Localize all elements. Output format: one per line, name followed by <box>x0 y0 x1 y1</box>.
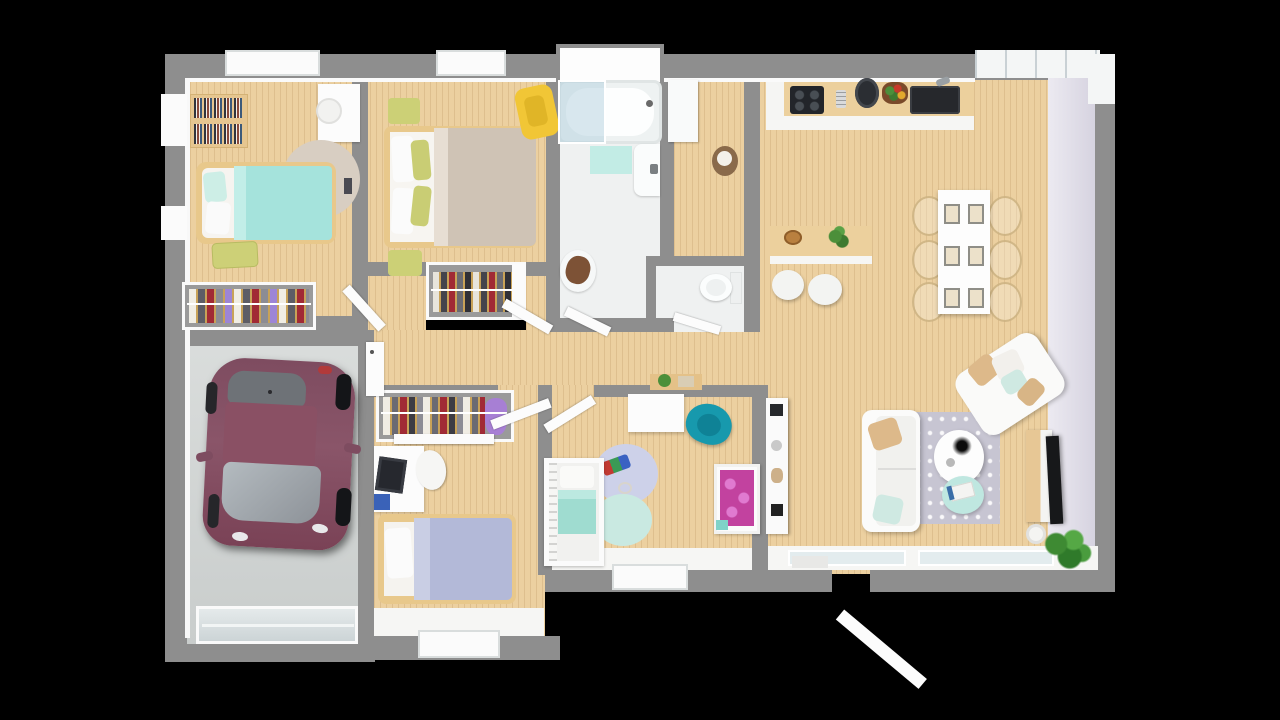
car-roof <box>222 402 317 469</box>
bath-sink-faucet <box>650 164 658 174</box>
shelf-deco-frame <box>770 404 783 416</box>
coffee-table-ball <box>946 458 955 467</box>
placemat-1 <box>944 204 960 224</box>
shelf-deco-star <box>771 504 783 516</box>
glass-patio-right <box>918 550 1054 566</box>
dining-chair-6 <box>988 282 1022 322</box>
coffee-table-fur-deco <box>952 436 972 456</box>
changing-table-front <box>720 470 754 526</box>
hall-cabinet <box>668 80 698 142</box>
bed2-pillow-olive-1 <box>410 139 431 180</box>
wall-wc-west <box>646 256 656 332</box>
window-bedroom1-north <box>225 50 320 76</box>
bed1-wall-art <box>344 178 352 194</box>
dining-chair-5 <box>988 240 1022 280</box>
closet-bedroom2-rail <box>431 289 517 291</box>
window-bedroom2-north <box>436 50 506 76</box>
closet-bedroom1-rail <box>187 303 311 305</box>
island <box>770 226 872 260</box>
island-plant <box>824 222 852 254</box>
crib-blanket-stripe <box>558 490 596 499</box>
bed1-pillow-mint <box>202 171 227 203</box>
bar-stool-2 <box>808 274 842 305</box>
entry-step <box>792 556 828 568</box>
crib-pillow <box>560 466 594 488</box>
wall-right <box>1095 54 1115 592</box>
placemat-6 <box>968 288 984 308</box>
shelf-deco-vase <box>771 468 783 483</box>
window-kitchen-north <box>975 50 1100 78</box>
nursery-table <box>628 394 684 432</box>
placemat-3 <box>944 246 960 266</box>
hall-basket-towels <box>717 151 732 166</box>
desk-blue-box <box>374 494 390 510</box>
window-right-top-corner <box>1088 54 1115 104</box>
bed3-blanket-fold <box>414 518 430 600</box>
bathtub-glass <box>558 80 606 144</box>
trim-left-inner <box>185 78 190 638</box>
placemat-2 <box>968 204 984 224</box>
kitchen-sink <box>910 86 960 114</box>
nursery-shelf-box <box>678 376 694 387</box>
bed1-blanket <box>234 166 332 240</box>
floorplan-scene <box>0 0 1280 720</box>
wall-garage-south <box>165 644 375 662</box>
veggie-basket <box>882 82 908 104</box>
bed3-pillow <box>384 527 413 579</box>
car-antenna-dot <box>268 390 272 394</box>
wall-wc-north <box>646 256 758 266</box>
changing-table-teal-box <box>716 520 728 530</box>
shelf-deco-orb <box>771 440 782 451</box>
island-bowl <box>784 230 802 245</box>
car-windshield <box>221 461 322 524</box>
coffee-maker <box>855 78 879 108</box>
placemat-4 <box>968 246 984 266</box>
closet-bedroom3-door <box>394 434 494 444</box>
kitchen-end-cabinet <box>766 82 784 120</box>
bookshelf-books-row2 <box>194 124 244 144</box>
bath-mat <box>590 146 632 174</box>
car-wheel-rear-left <box>205 382 218 415</box>
crib-rail-left <box>549 463 557 561</box>
nursery-shelf-plant <box>658 374 671 387</box>
island-front <box>770 256 872 264</box>
bathtub-faucet <box>646 100 653 107</box>
sofa-pillow-mint <box>871 493 904 525</box>
car-taillight <box>318 366 332 375</box>
closet-bedroom3-rail <box>381 412 507 414</box>
door-garage <box>366 342 384 396</box>
car-wheel-front-right <box>335 488 352 527</box>
window-left-upper <box>161 94 187 146</box>
window-left-lower <box>161 206 187 240</box>
door-entrance <box>836 610 927 689</box>
plant-living <box>1040 524 1094 574</box>
closet-bedroom3-clothes <box>383 397 485 435</box>
cooktop <box>790 86 824 114</box>
vanity-stool <box>316 98 342 124</box>
sofa-seat-divider <box>878 468 916 470</box>
floorplan-canvas <box>0 0 1280 720</box>
spice-jars <box>836 90 846 108</box>
toy-ring <box>618 482 632 494</box>
bar-stool-1 <box>772 270 804 300</box>
wall-living-south-left <box>768 570 832 592</box>
placemat-5 <box>944 288 960 308</box>
bookshelf-books-row1 <box>194 98 244 118</box>
garage-door-seam <box>202 624 354 627</box>
car-wheel-rear-right <box>335 374 352 411</box>
wc-toilet-lid <box>706 279 726 296</box>
bed1-ottoman <box>211 241 258 269</box>
bed2-duvet-fold <box>434 128 448 246</box>
dining-chair-4 <box>988 196 1022 236</box>
window-bedroom3-south <box>418 630 500 658</box>
bed2-nightstand-bottom <box>388 250 422 276</box>
window-nursery-south <box>612 564 688 590</box>
bed2-nightstand-top <box>388 98 420 124</box>
bed2-duvet <box>434 128 536 246</box>
laptop <box>375 456 407 494</box>
bed1-pillow-white <box>205 201 232 235</box>
wall-kitchen-west <box>744 54 760 332</box>
closet-bedroom1-clothes <box>189 289 309 323</box>
door-garage-handle <box>370 350 374 354</box>
kitchen-counter-front <box>766 116 974 130</box>
bed1-blanket-fold <box>234 166 246 240</box>
car-wheel-front-left <box>207 494 220 529</box>
